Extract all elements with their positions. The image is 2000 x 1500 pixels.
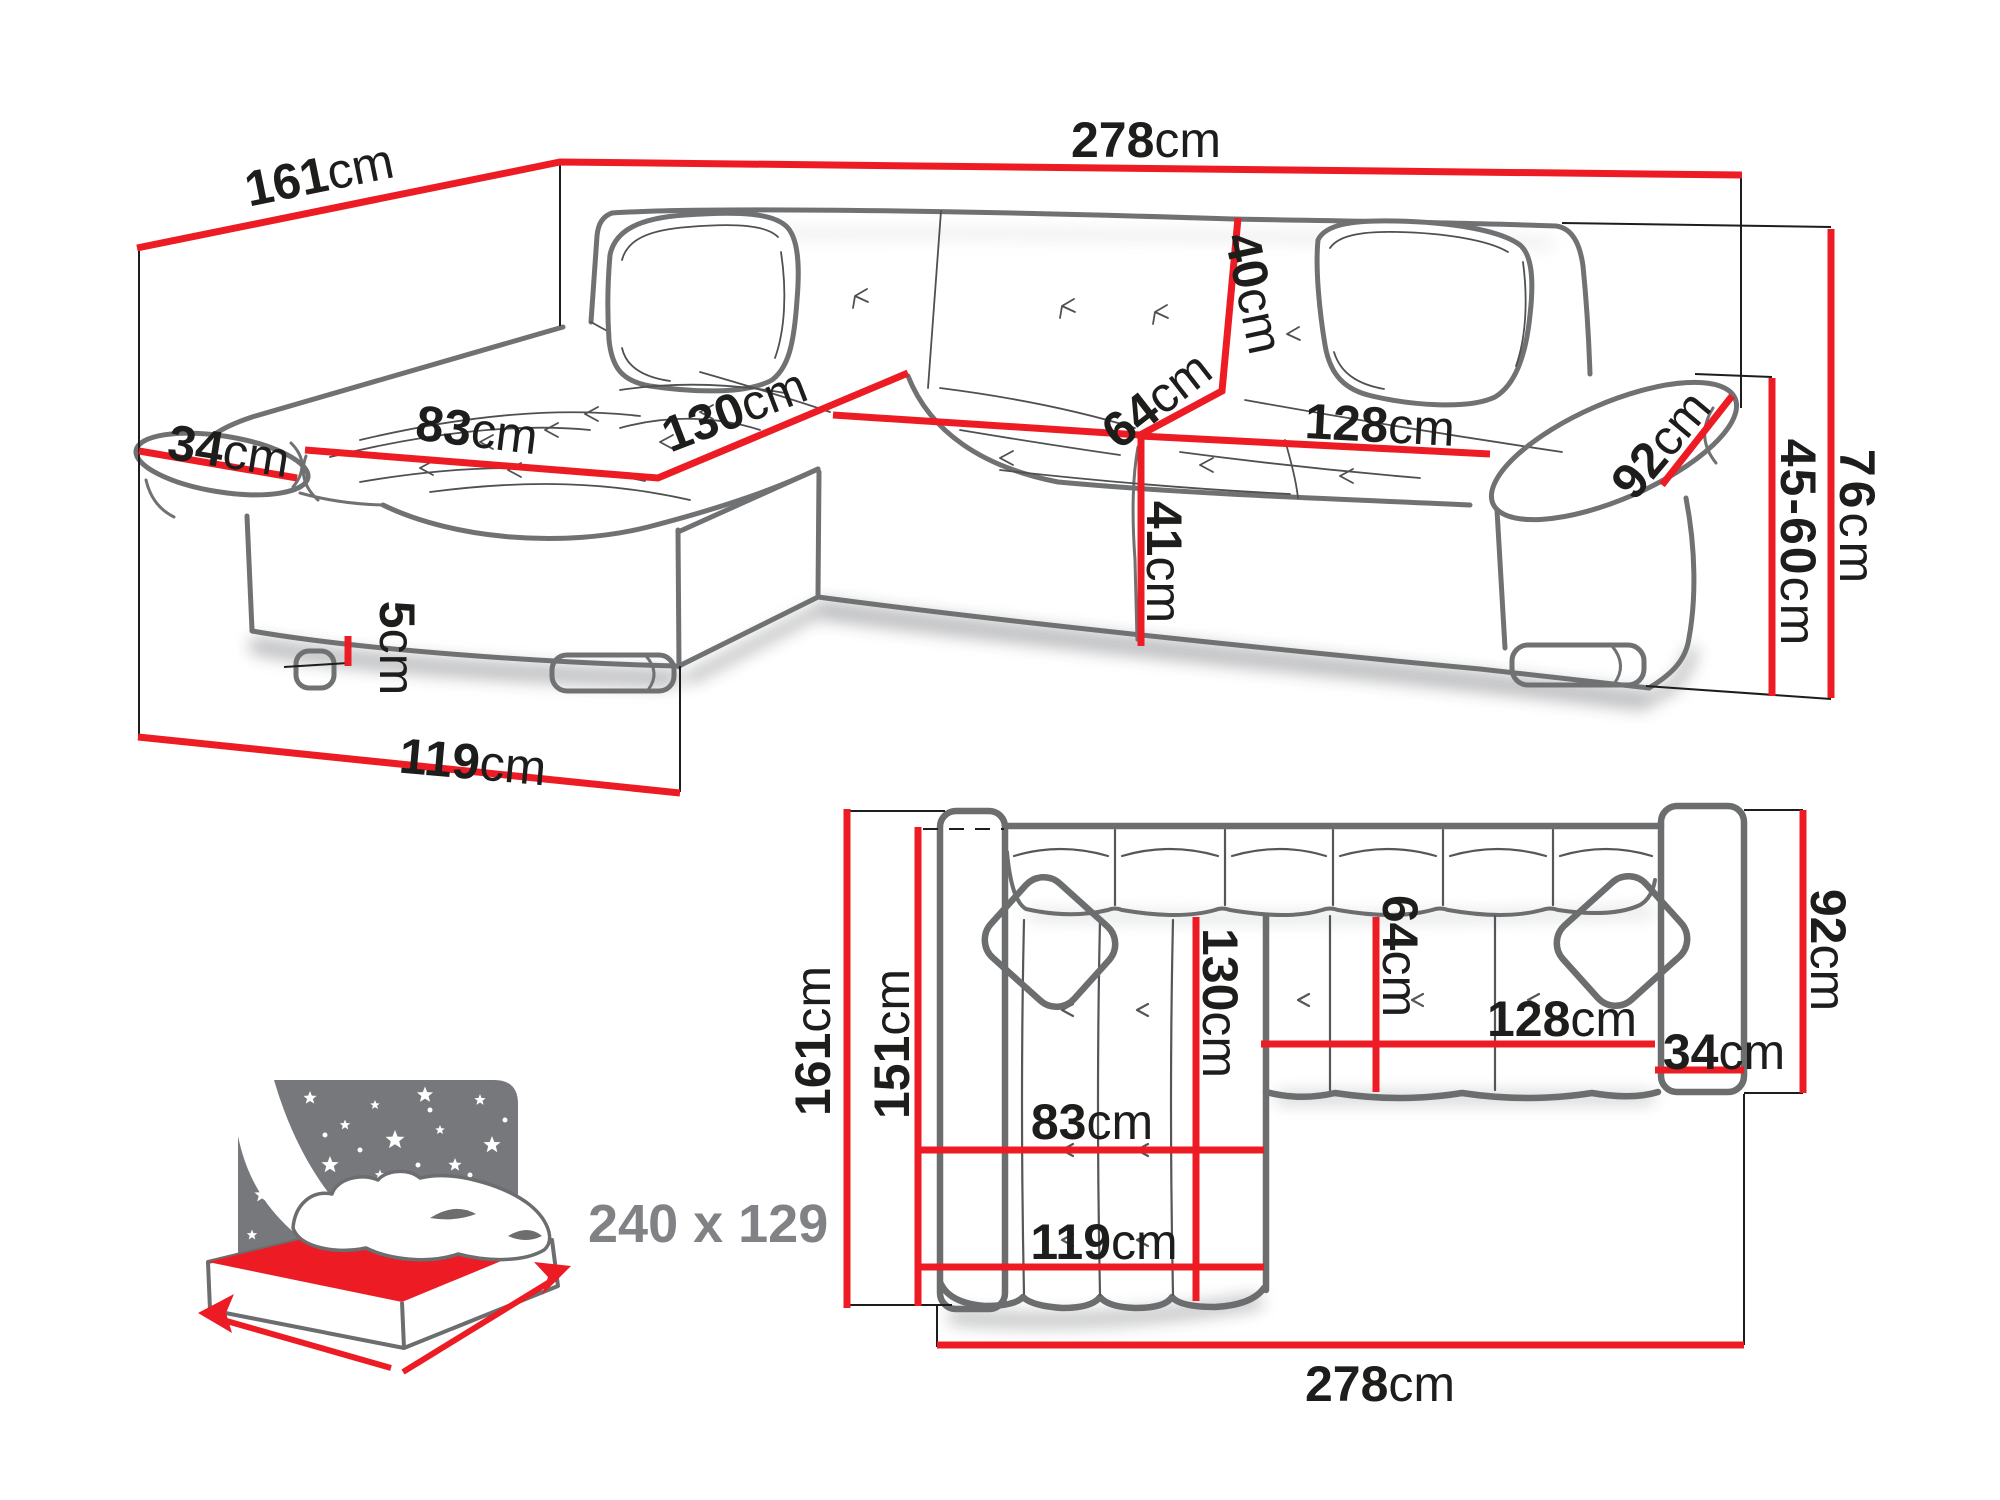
svg-text:128cm: 128cm [1304,393,1457,457]
svg-text:76cm: 76cm [1829,449,1885,587]
svg-text:130cm: 130cm [1192,928,1248,1078]
svg-text:240 x 129: 240 x 129 [588,1194,828,1254]
svg-text:83cm: 83cm [1031,1094,1153,1150]
svg-text:278cm: 278cm [1071,112,1221,168]
svg-text:34cm: 34cm [1663,1024,1785,1080]
svg-text:64cm: 64cm [1372,895,1428,1017]
svg-text:128cm: 128cm [1487,991,1637,1047]
svg-text:45-60cm: 45-60cm [1770,439,1826,648]
svg-text:5cm: 5cm [369,601,425,695]
svg-text:161cm: 161cm [785,966,841,1116]
svg-text:119cm: 119cm [1030,1214,1177,1270]
svg-text:41cm: 41cm [1136,501,1192,623]
svg-text:278cm: 278cm [1305,1356,1455,1412]
svg-text:92cm: 92cm [1800,889,1856,1011]
svg-text:151cm: 151cm [864,969,920,1119]
